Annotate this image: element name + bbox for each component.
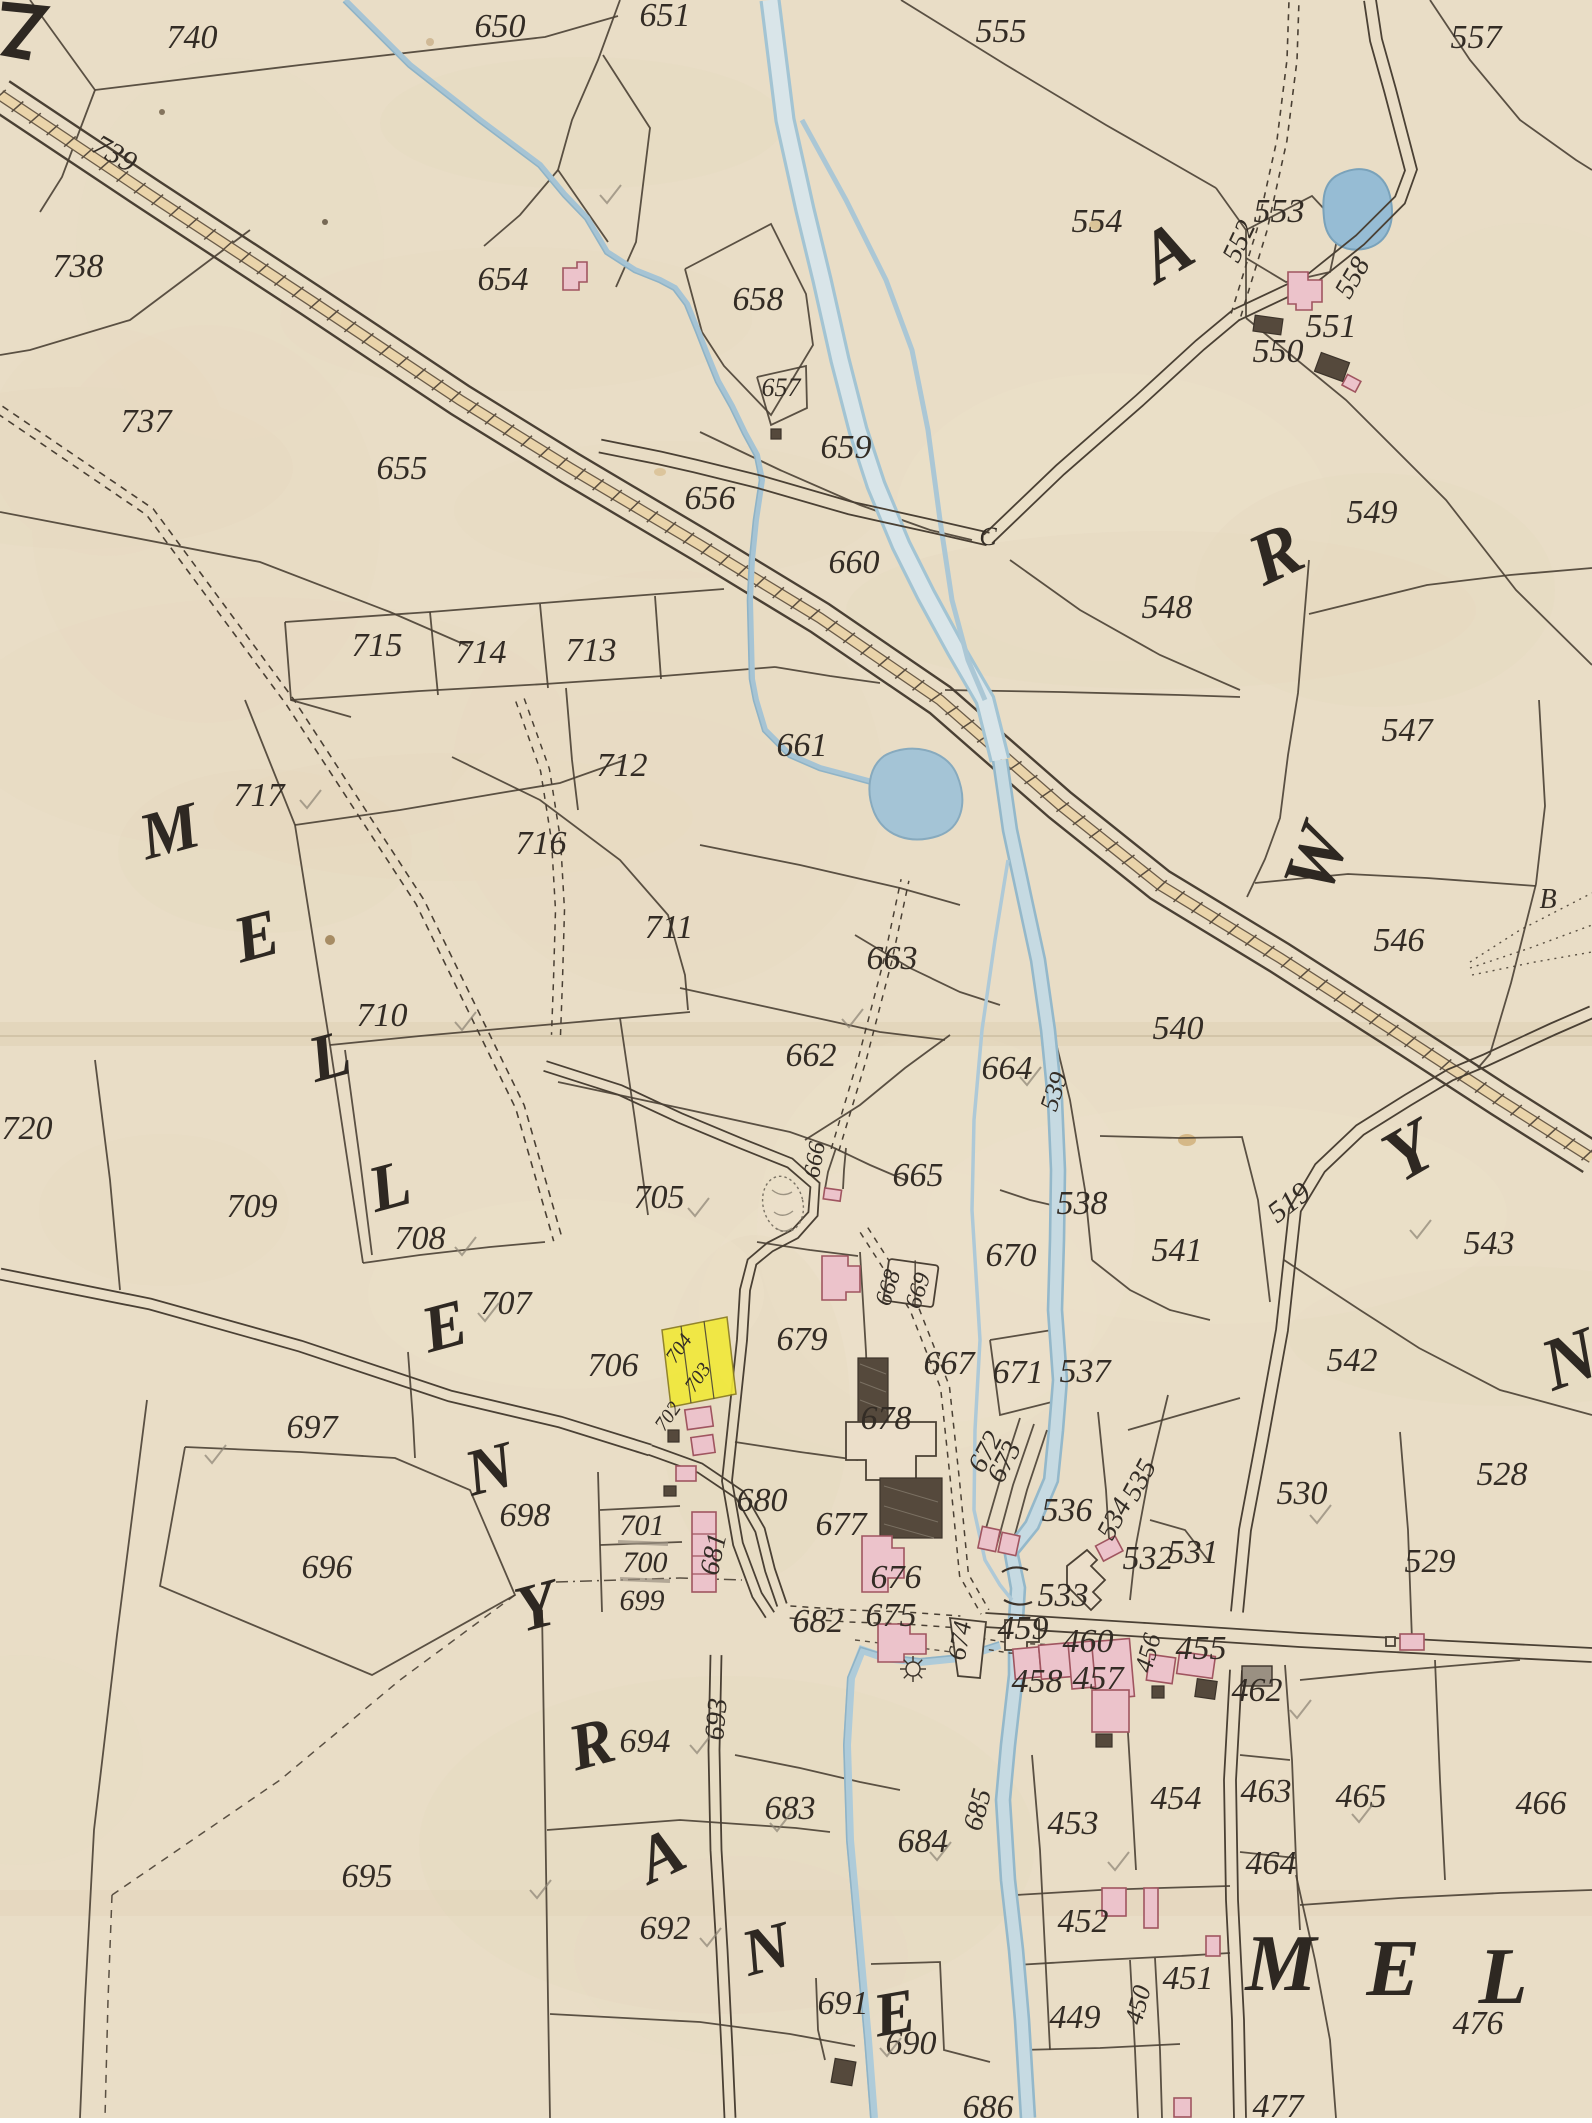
svg-text:532: 532 <box>1123 1540 1174 1577</box>
svg-text:460: 460 <box>1063 1623 1114 1660</box>
svg-text:705: 705 <box>634 1179 685 1216</box>
svg-text:533: 533 <box>1038 1577 1089 1614</box>
svg-text:709: 709 <box>227 1188 278 1225</box>
svg-text:692: 692 <box>640 1910 691 1947</box>
svg-text:551: 551 <box>1306 308 1357 345</box>
svg-text:712: 712 <box>597 747 648 784</box>
svg-text:542: 542 <box>1327 1342 1378 1379</box>
svg-text:663: 663 <box>867 940 918 977</box>
svg-text:C: C <box>979 522 997 551</box>
svg-text:679: 679 <box>777 1321 828 1358</box>
svg-text:457: 457 <box>1073 1660 1126 1697</box>
svg-text:547: 547 <box>1382 712 1435 749</box>
svg-text:710: 710 <box>357 997 408 1034</box>
svg-text:555: 555 <box>976 13 1027 50</box>
svg-text:466: 466 <box>1516 1785 1567 1822</box>
svg-text:737: 737 <box>121 403 174 440</box>
svg-text:453: 453 <box>1048 1805 1099 1842</box>
svg-text:711: 711 <box>645 909 693 946</box>
svg-text:678: 678 <box>861 1400 912 1437</box>
svg-text:676: 676 <box>871 1559 922 1596</box>
svg-text:657: 657 <box>762 373 802 402</box>
svg-text:659: 659 <box>821 429 872 466</box>
svg-text:717: 717 <box>234 777 287 814</box>
svg-text:677: 677 <box>816 1506 869 1543</box>
svg-text:716: 716 <box>516 825 567 862</box>
svg-text:720: 720 <box>2 1110 53 1147</box>
svg-text:675: 675 <box>866 1597 917 1634</box>
svg-text:454: 454 <box>1151 1780 1202 1817</box>
svg-text:693: 693 <box>699 1697 734 1742</box>
svg-text:699: 699 <box>620 1584 665 1617</box>
svg-text:548: 548 <box>1142 589 1193 626</box>
svg-text:708: 708 <box>395 1220 446 1257</box>
svg-text:554: 554 <box>1072 203 1123 240</box>
svg-text:654: 654 <box>478 261 529 298</box>
svg-text:458: 458 <box>1012 1663 1063 1700</box>
svg-text:541: 541 <box>1152 1232 1203 1269</box>
svg-text:553: 553 <box>1254 193 1305 230</box>
svg-text:455: 455 <box>1176 1630 1227 1667</box>
svg-text:538: 538 <box>1057 1185 1108 1222</box>
svg-text:700: 700 <box>623 1546 668 1579</box>
svg-text:543: 543 <box>1464 1225 1515 1262</box>
svg-text:656: 656 <box>685 480 736 517</box>
svg-text:651: 651 <box>640 0 691 34</box>
svg-text:706: 706 <box>588 1347 639 1384</box>
svg-text:696: 696 <box>302 1549 353 1586</box>
svg-text:682: 682 <box>793 1603 844 1640</box>
svg-text:694: 694 <box>620 1723 671 1760</box>
svg-text:529: 529 <box>1405 1543 1456 1580</box>
svg-text:740: 740 <box>167 19 218 56</box>
svg-text:550: 550 <box>1253 333 1304 370</box>
svg-text:546: 546 <box>1374 922 1425 959</box>
svg-text:L: L <box>1478 1933 1528 2021</box>
svg-text:715: 715 <box>352 627 403 664</box>
svg-text:671: 671 <box>993 1354 1044 1391</box>
svg-text:E: E <box>1365 1925 1419 2013</box>
svg-text:528: 528 <box>1477 1456 1528 1493</box>
svg-text:680: 680 <box>737 1482 788 1519</box>
svg-text:695: 695 <box>342 1858 393 1895</box>
svg-text:665: 665 <box>893 1157 944 1194</box>
svg-text:667: 667 <box>924 1345 977 1382</box>
svg-text:691: 691 <box>818 1985 869 2022</box>
svg-text:451: 451 <box>1163 1960 1214 1997</box>
svg-text:536: 536 <box>1042 1492 1093 1529</box>
svg-text:477: 477 <box>1253 2088 1306 2118</box>
svg-text:697: 697 <box>287 1409 340 1446</box>
svg-text:738: 738 <box>53 248 104 285</box>
svg-text:462: 462 <box>1232 1672 1283 1709</box>
svg-text:662: 662 <box>786 1037 837 1074</box>
svg-text:449: 449 <box>1050 1999 1101 2036</box>
svg-text:701: 701 <box>620 1509 665 1542</box>
svg-text:714: 714 <box>456 634 507 671</box>
svg-text:459: 459 <box>998 1610 1049 1647</box>
svg-text:540: 540 <box>1153 1010 1204 1047</box>
svg-text:557: 557 <box>1451 19 1504 56</box>
svg-text:452: 452 <box>1058 1903 1109 1940</box>
svg-text:713: 713 <box>566 632 617 669</box>
svg-text:683: 683 <box>765 1790 816 1827</box>
svg-text:537: 537 <box>1060 1353 1113 1390</box>
svg-text:463: 463 <box>1241 1773 1292 1810</box>
svg-text:B: B <box>1539 884 1556 915</box>
svg-text:530: 530 <box>1277 1475 1328 1512</box>
svg-text:686: 686 <box>963 2089 1014 2118</box>
svg-text:658: 658 <box>733 281 784 318</box>
svg-text:M: M <box>1243 1920 1319 2008</box>
svg-text:661: 661 <box>777 727 828 764</box>
svg-text:670: 670 <box>986 1237 1037 1274</box>
svg-text:660: 660 <box>829 544 880 581</box>
svg-text:464: 464 <box>1246 1845 1297 1882</box>
svg-text:531: 531 <box>1168 1534 1219 1571</box>
svg-text:650: 650 <box>475 8 526 45</box>
svg-text:655: 655 <box>377 450 428 487</box>
svg-text:698: 698 <box>500 1497 551 1534</box>
svg-text:549: 549 <box>1347 494 1398 531</box>
svg-text:465: 465 <box>1336 1778 1387 1815</box>
